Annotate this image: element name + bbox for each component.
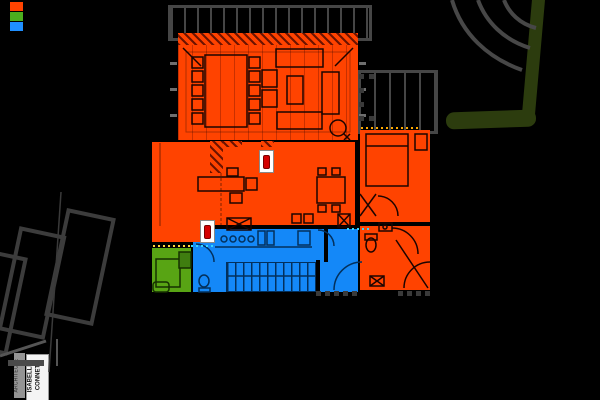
wall bbox=[210, 225, 358, 229]
driveway-arcs bbox=[452, 0, 536, 70]
terrace bbox=[152, 248, 193, 292]
site-plan: ARCHITECTE ISABELLE CONNET bbox=[0, 0, 600, 400]
hedge-horizontal bbox=[446, 109, 537, 129]
wall bbox=[324, 228, 328, 262]
room-bedroom bbox=[360, 130, 430, 222]
legend-swatch-day-zone bbox=[10, 2, 23, 11]
wall bbox=[191, 242, 193, 292]
architect-role-label: ARCHITECTE bbox=[14, 354, 25, 398]
window-tick bbox=[359, 114, 366, 117]
wall bbox=[316, 260, 320, 292]
pergola-right bbox=[356, 70, 438, 134]
window-tick bbox=[359, 88, 366, 91]
window-tick bbox=[170, 62, 177, 65]
fire-extinguisher-body bbox=[204, 225, 211, 239]
wall bbox=[360, 222, 386, 226]
hedge-vertical bbox=[522, 0, 546, 120]
legend-swatch-terrace-zone bbox=[10, 12, 23, 21]
staircase bbox=[226, 262, 318, 292]
window-tick bbox=[170, 88, 177, 91]
boundary-lines bbox=[49, 192, 61, 372]
wall-hatched-top bbox=[178, 33, 358, 45]
wall-hatched-small bbox=[261, 141, 274, 147]
room-wc bbox=[193, 242, 215, 292]
room-office-hall bbox=[152, 142, 355, 228]
legend-swatch-service-zone bbox=[10, 22, 23, 31]
room-living-dining bbox=[178, 45, 358, 140]
title-block-role: ARCHITECTE bbox=[14, 353, 25, 398]
fire-extinguisher-body bbox=[263, 155, 270, 169]
parking-spaces bbox=[0, 210, 114, 353]
column-hatched bbox=[210, 141, 223, 173]
architect-name-label: ISABELLE CONNET bbox=[28, 357, 47, 399]
wall bbox=[404, 222, 430, 226]
window-tick bbox=[170, 114, 177, 117]
room-bathroom bbox=[360, 226, 430, 290]
title-block-name: ISABELLE CONNET bbox=[26, 354, 49, 400]
fire-extinguisher-icon bbox=[200, 220, 215, 243]
window-tick bbox=[359, 62, 366, 65]
fire-extinguisher-icon bbox=[259, 150, 274, 173]
